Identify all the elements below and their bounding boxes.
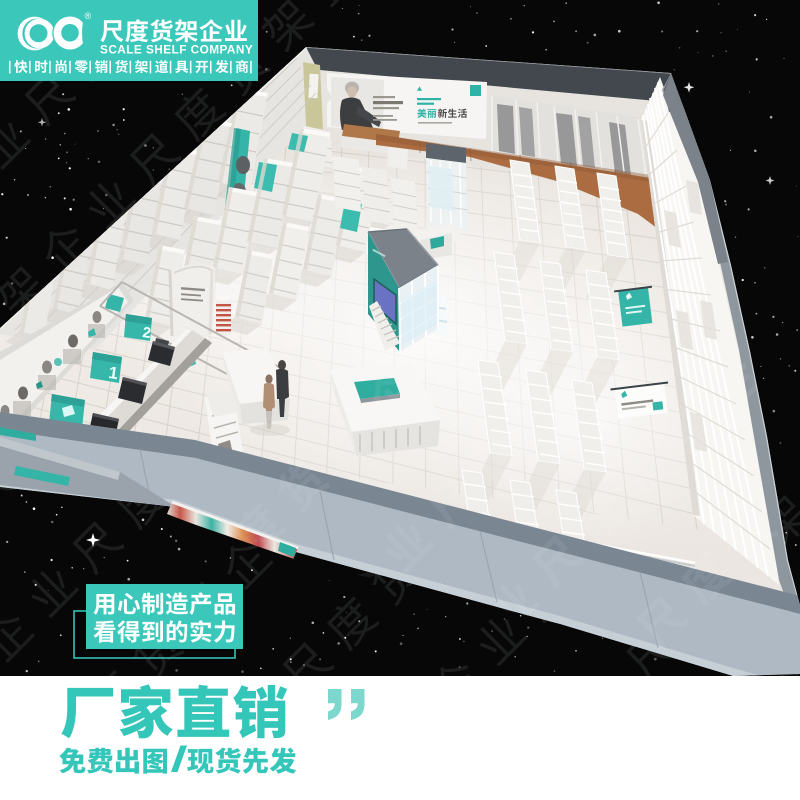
svg-text:®: ®	[85, 11, 92, 21]
svg-text:SCALE SHELF COMPANY: SCALE SHELF COMPANY	[100, 43, 253, 57]
